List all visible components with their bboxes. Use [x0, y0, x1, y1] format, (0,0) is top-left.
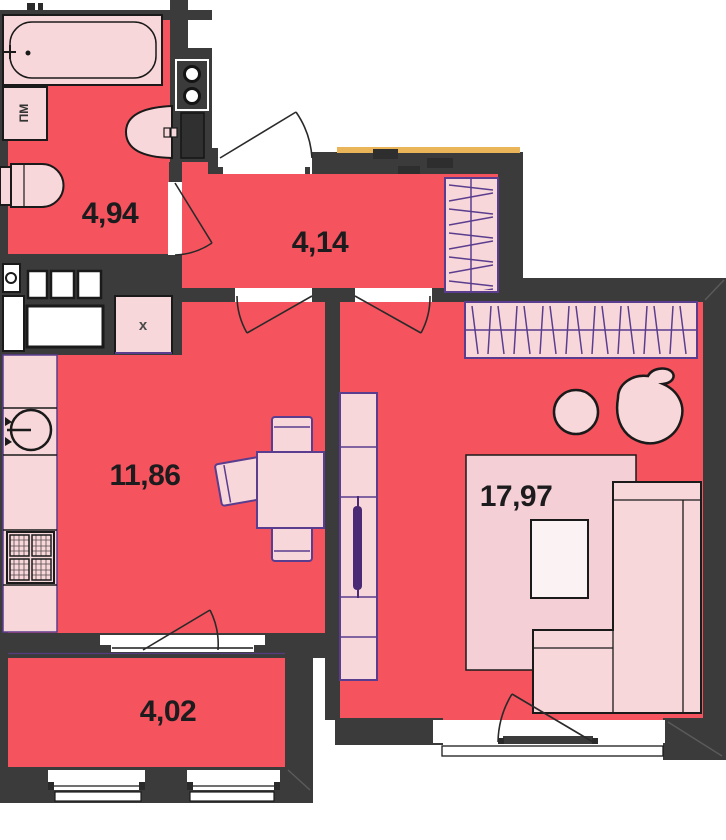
tv-stand	[340, 393, 377, 680]
cabinet-box	[3, 296, 24, 351]
pouf	[554, 390, 598, 434]
kitchen-window	[100, 635, 265, 652]
kitchen-counter	[3, 355, 57, 632]
shaft-opening	[78, 271, 101, 298]
cabinet-box	[27, 306, 103, 347]
armchair	[617, 369, 682, 444]
vent-box: x	[115, 296, 172, 353]
area-label-kitchen: 11,86	[110, 459, 181, 492]
basin-tap-icon	[164, 128, 170, 137]
shaft-opening	[51, 271, 74, 298]
balcony-window-right	[187, 770, 280, 801]
closet-wardrobe	[445, 178, 498, 292]
washing-machine-label: ПМ	[17, 104, 31, 123]
meter-dial-icon	[6, 273, 16, 283]
dimension-tick	[27, 3, 35, 10]
balcony-window-left	[48, 770, 145, 801]
bathroom-door-opening	[168, 182, 182, 255]
riser-pipe-icon	[185, 89, 200, 104]
vent-box-label: x	[139, 317, 148, 334]
living-wardrobe	[465, 302, 697, 358]
utility-boxes	[3, 264, 103, 351]
area-label-living: 17,97	[480, 480, 553, 513]
living-window	[433, 720, 665, 756]
washing-machine: ПМ	[3, 87, 47, 140]
floor-plan-page: x ПМ	[0, 0, 726, 840]
dimension-tick	[38, 3, 43, 10]
tub-drain-icon	[26, 51, 31, 56]
tv-icon	[353, 506, 362, 590]
entrance-opening	[218, 148, 312, 174]
insulation-strip	[337, 147, 520, 153]
dining-table	[257, 452, 324, 528]
kitchen-hob	[7, 532, 54, 583]
plumbing-shaft	[176, 60, 208, 158]
area-label-balcony: 4,02	[140, 695, 196, 728]
riser-pipe-icon	[185, 67, 200, 82]
window-sill	[442, 746, 663, 756]
living-door-opening	[355, 288, 432, 302]
bathtub	[3, 15, 162, 85]
toilet	[0, 164, 64, 207]
area-label-bathroom: 4,94	[82, 197, 139, 230]
area-label-hallway: 4,14	[292, 226, 349, 259]
floor-plan: x ПМ	[0, 0, 726, 840]
window-sill	[190, 792, 274, 801]
window-sill	[55, 792, 141, 801]
shaft-opening	[28, 271, 47, 298]
kitchen-door-opening	[235, 288, 312, 302]
coffee-table	[531, 520, 588, 598]
basin-tap-icon	[171, 128, 177, 137]
